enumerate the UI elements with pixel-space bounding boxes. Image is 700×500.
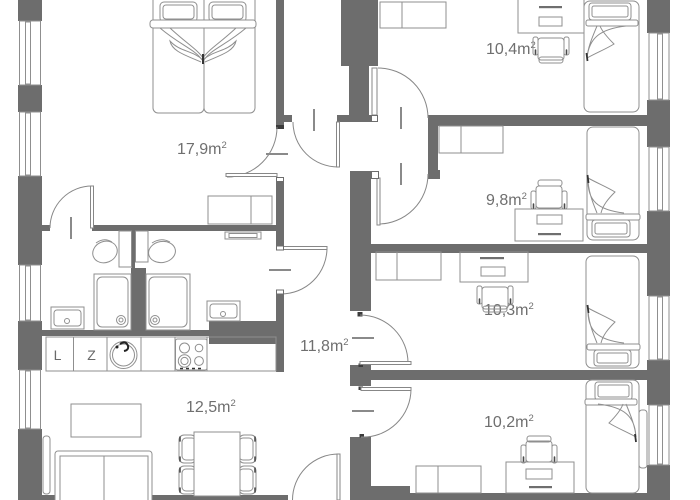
svg-text:10,2m2: 10,2m2 bbox=[484, 413, 534, 431]
svg-text:L: L bbox=[54, 347, 62, 363]
svg-text:12,5m2: 12,5m2 bbox=[186, 398, 236, 416]
svg-text:17,9m2: 17,9m2 bbox=[177, 140, 227, 158]
svg-text:11,8m2: 11,8m2 bbox=[300, 337, 349, 355]
svg-text:10,4m2: 10,4m2 bbox=[486, 40, 536, 58]
svg-text:9,8m2: 9,8m2 bbox=[486, 191, 527, 209]
svg-text:Z: Z bbox=[87, 347, 96, 363]
